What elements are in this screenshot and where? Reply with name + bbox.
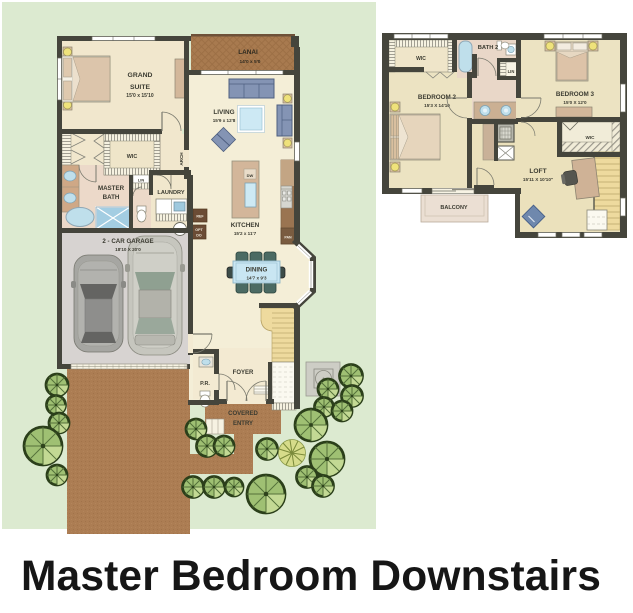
svg-text:ENTRY: ENTRY — [233, 421, 253, 427]
svg-text:15'11 X 10'10": 15'11 X 10'10" — [523, 177, 553, 182]
svg-text:LANAI: LANAI — [238, 49, 258, 56]
svg-text:LIN: LIN — [508, 69, 515, 74]
svg-text:WIC: WIC — [416, 56, 426, 62]
svg-text:DO: DO — [196, 234, 202, 238]
svg-text:BATH 2: BATH 2 — [478, 45, 499, 51]
svg-text:18'10 X 20'0: 18'10 X 20'0 — [115, 247, 141, 252]
svg-text:15'3 X 14'10: 15'3 X 14'10 — [424, 103, 450, 108]
svg-text:DW: DW — [247, 173, 254, 178]
svg-text:15'0 X 12'0: 15'0 X 12'0 — [563, 100, 587, 105]
svg-text:SUITE: SUITE — [130, 84, 150, 91]
svg-text:ARCH: ARCH — [179, 152, 184, 166]
svg-text:GRAND: GRAND — [128, 72, 153, 79]
svg-text:15'0 x 15'10: 15'0 x 15'10 — [126, 93, 154, 99]
svg-text:15'2 x 11'7: 15'2 x 11'7 — [234, 231, 257, 236]
svg-text:BATH: BATH — [103, 194, 120, 201]
svg-text:2 - CAR GARAGE: 2 - CAR GARAGE — [102, 238, 153, 245]
svg-text:Master Bedroom Downstairs: Master Bedroom Downstairs — [21, 553, 601, 600]
svg-text:DINING: DINING — [246, 267, 268, 274]
svg-text:LOFT: LOFT — [529, 168, 546, 175]
svg-text:14'7 x 9'3: 14'7 x 9'3 — [246, 276, 267, 281]
svg-text:OPT: OPT — [195, 228, 203, 232]
svg-text:KITCHEN: KITCHEN — [231, 222, 260, 229]
svg-text:WIC: WIC — [586, 135, 596, 140]
svg-text:BEDROOM 3: BEDROOM 3 — [556, 91, 595, 98]
svg-text:P.R.: P.R. — [200, 381, 210, 387]
svg-text:PAN: PAN — [284, 236, 292, 240]
svg-text:LAUNDRY: LAUNDRY — [157, 190, 184, 196]
svg-text:15'9 x 12'8: 15'9 x 12'8 — [213, 118, 236, 123]
svg-text:REF: REF — [196, 215, 204, 219]
svg-text:LIN: LIN — [138, 178, 145, 183]
svg-text:COVERED: COVERED — [228, 411, 258, 417]
svg-text:14'0 x 5'0: 14'0 x 5'0 — [240, 59, 261, 65]
svg-text:LIVING: LIVING — [213, 109, 234, 116]
svg-text:MASTER: MASTER — [98, 185, 125, 192]
svg-text:WIC: WIC — [127, 154, 138, 160]
svg-text:FOYER: FOYER — [233, 370, 254, 376]
svg-text:BALCONY: BALCONY — [440, 205, 468, 211]
